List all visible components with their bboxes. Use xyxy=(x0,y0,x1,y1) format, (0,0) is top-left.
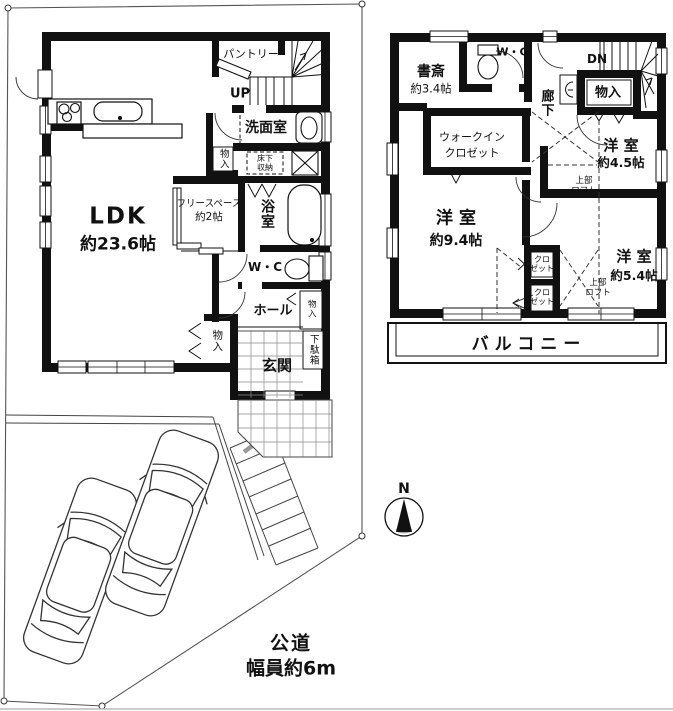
storage-washroom-box xyxy=(213,147,233,171)
corridor-basin xyxy=(560,75,577,104)
balcony-outline xyxy=(388,323,666,363)
washer-pan xyxy=(292,151,318,175)
storage-2f-box xyxy=(587,80,631,105)
pantry-shelf xyxy=(216,59,251,79)
stairs-1f xyxy=(250,41,330,105)
floorplan-drawing xyxy=(0,0,673,711)
freespace-partition xyxy=(173,188,238,254)
floor1-plan xyxy=(16,32,332,457)
floorplan-page: LDK 約23.6帖 パントリー UP 洗面室 物入 床下 収納 フリースペース… xyxy=(0,0,673,711)
washbasin xyxy=(296,112,322,143)
shoe-cabinet-box xyxy=(303,331,323,369)
bath-folding-door xyxy=(248,184,276,197)
bathtub xyxy=(288,185,321,245)
genkan-tiles xyxy=(238,327,303,398)
toilet-1f xyxy=(285,256,323,281)
kitchen-counter xyxy=(48,99,182,138)
toilet-2f xyxy=(478,45,498,79)
underfloor-storage-box xyxy=(247,152,283,174)
storage-hall-box xyxy=(300,291,322,329)
north-compass xyxy=(385,498,423,536)
floor2-plan xyxy=(387,31,667,363)
